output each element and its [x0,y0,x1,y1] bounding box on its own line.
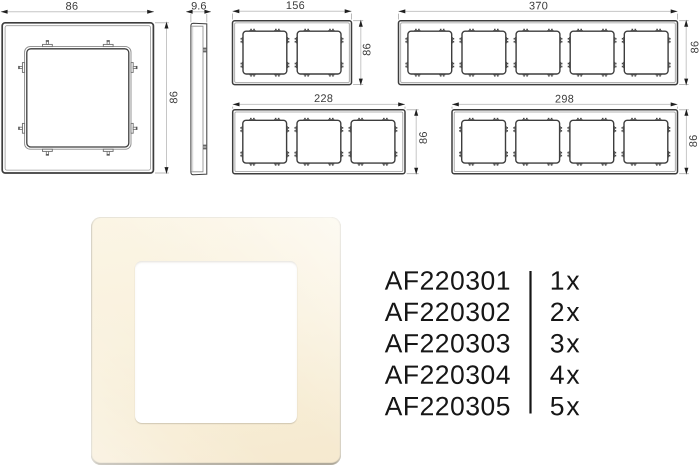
svg-text:9.6: 9.6 [191,1,206,13]
